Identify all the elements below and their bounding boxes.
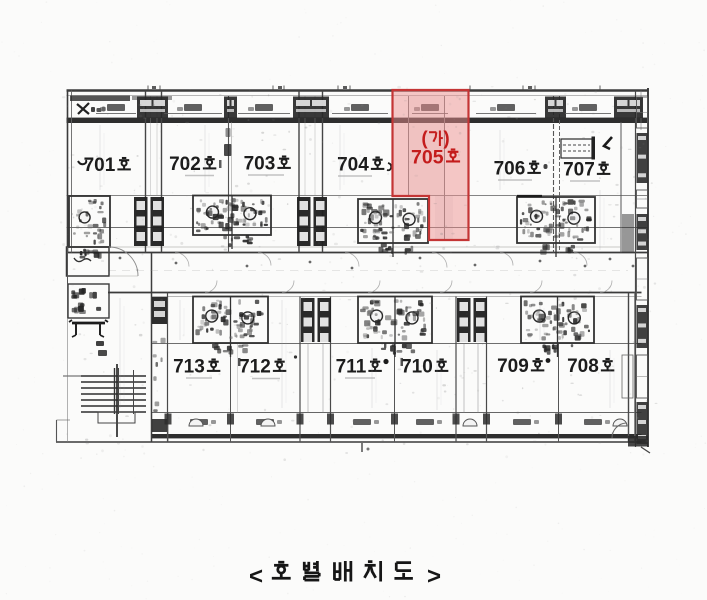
svg-text:708: 708 [567,356,599,377]
svg-text:703: 703 [244,154,276,175]
svg-text:706: 706 [494,159,526,180]
svg-text:713: 713 [173,357,205,378]
svg-text:): ) [443,129,449,150]
svg-text:<: < [249,563,263,590]
svg-text:>: > [427,563,441,590]
svg-text:705: 705 [411,147,444,169]
svg-text:704: 704 [337,155,369,176]
svg-text:711: 711 [336,357,367,378]
svg-text:710: 710 [401,357,433,378]
svg-text:707: 707 [563,160,595,181]
svg-text:702: 702 [169,154,201,175]
svg-text:709: 709 [497,356,529,377]
svg-text:712: 712 [239,357,271,378]
